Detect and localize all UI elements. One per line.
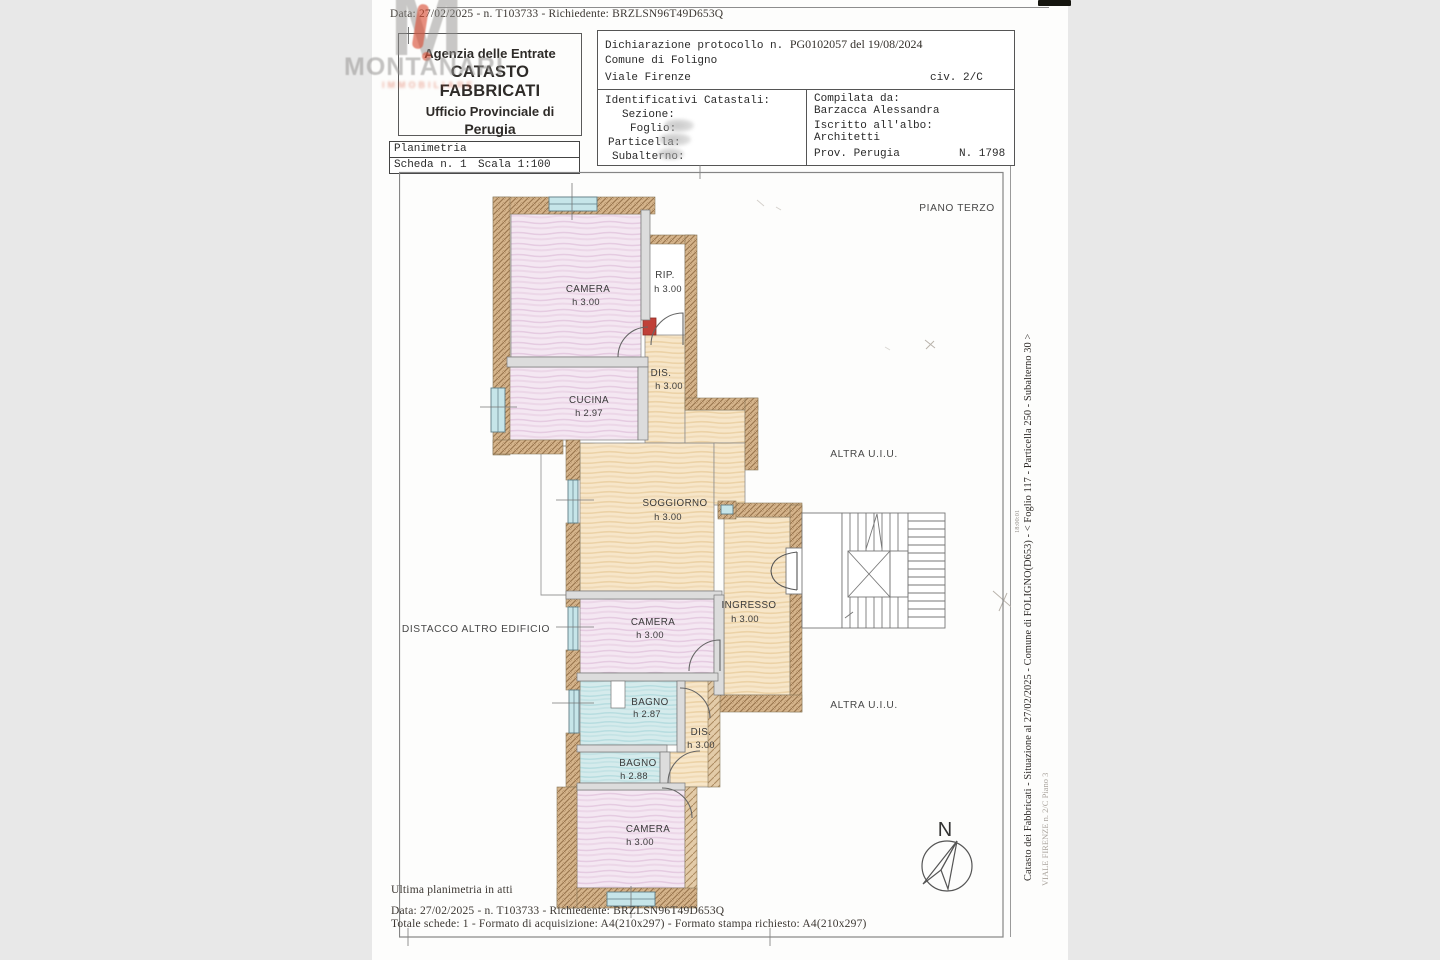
- identificativi-title: Identificativi Catastali:: [605, 94, 770, 108]
- albo-value: Architetti: [814, 132, 933, 144]
- window-pillar: [721, 505, 733, 514]
- top-data-line: Data: 27/02/2025 - n. T103733 - Richiede…: [390, 8, 723, 20]
- altra-uiu-upper: ALTRA U.I.U.: [830, 449, 898, 460]
- label-bagno-2: BAGNO: [619, 758, 656, 769]
- agency-header-box: Agenzia delle Entrate CATASTO FABBRICATI…: [398, 33, 582, 136]
- protocol-line: Dichiarazione protocollo n. PG0102057 de…: [605, 37, 923, 52]
- room-soggiorno: [580, 443, 714, 591]
- height-soggiorno: h 3.00: [654, 512, 682, 522]
- albo-number: N. 1798: [959, 148, 1005, 160]
- compass-north-label: N: [938, 819, 952, 841]
- bottom-data-line: Data: 27/02/2025 - n. T103733 - Richiede…: [391, 905, 724, 917]
- catasto-title: CATASTO FABBRICATI: [399, 63, 581, 101]
- declaration-box: Dichiarazione protocollo n. PG0102057 de…: [597, 30, 1015, 166]
- comune-line: Comune di Foligno: [605, 55, 717, 67]
- room-bagno-1: [580, 681, 677, 745]
- label-dis-lower: DIS.: [691, 727, 712, 738]
- civico-value: civ. 2/C: [930, 72, 983, 84]
- label-soggiorno: SOGGIORNO: [642, 498, 707, 509]
- side-address-text: VIALE FIRENZE n. 2/C Piano 3: [1040, 586, 1050, 886]
- protocol-label: Dichiarazione protocollo n.: [605, 40, 783, 52]
- prov-label: Prov. Perugia: [814, 148, 900, 160]
- albo-block: Iscritto all'albo: Architetti: [814, 120, 933, 144]
- label-cucina: CUCINA: [569, 395, 609, 406]
- label-ingresso: INGRESSO: [722, 600, 777, 611]
- planimetria-label: Planimetria: [390, 142, 579, 158]
- height-ingresso: h 3.00: [731, 614, 759, 624]
- redacted-subalterno-value: [658, 148, 684, 160]
- bottom-totale-line: Totale schede: 1 - Formato di acquisizio…: [391, 918, 867, 930]
- compilata-name: Barzacca Alessandra: [814, 105, 939, 117]
- height-rip: h 3.00: [654, 284, 682, 294]
- compilata-label: Compilata da:: [814, 93, 939, 105]
- label-bagno-1: BAGNO: [631, 697, 668, 708]
- distacco-label: DISTACCO ALTRO EDIFICIO: [402, 624, 550, 635]
- compass: [922, 841, 972, 891]
- declaration-divider: [806, 89, 807, 165]
- altra-uiu-lower: ALTRA U.I.U.: [830, 700, 898, 711]
- floor-plan: N CAMERA h 3.00 RIP. h 3.00 DIS. h 3.00 …: [399, 162, 1011, 950]
- screenshot-root: { "colors": { "wall_hatch": "#cfa878", "…: [0, 0, 1440, 960]
- redacted-foglio-value: [664, 119, 694, 132]
- side-stamp-text: 18:00:01: [1014, 473, 1021, 533]
- via-line: Viale Firenze: [605, 72, 691, 84]
- floor-label: PIANO TERZO: [919, 203, 994, 214]
- height-bagno-2: h 2.88: [620, 771, 648, 781]
- room-soggiorno-e: [714, 443, 745, 505]
- stairwell: [802, 513, 945, 628]
- height-camera-top: h 3.00: [572, 297, 600, 307]
- redacted-particella-value: [659, 133, 691, 146]
- compilata-block: Compilata da: Barzacca Alessandra: [814, 93, 939, 117]
- agency-name: Agenzia delle Entrate: [399, 46, 581, 61]
- height-dis-lower: h 3.00: [687, 740, 715, 750]
- side-cadastral-text: Catasto dei Fabbricati - Situazione al 2…: [1023, 403, 1034, 881]
- label-camera-top: CAMERA: [566, 284, 610, 295]
- protocol-value: PG0102057 del 19/08/2024: [790, 37, 923, 51]
- height-dis-upper: h 3.00: [655, 381, 683, 391]
- label-rip: RIP.: [655, 270, 674, 281]
- height-bagno-1: h 2.87: [633, 709, 661, 719]
- height-camera-mid: h 3.00: [636, 630, 664, 640]
- height-cucina: h 2.97: [575, 408, 603, 418]
- label-dis-upper: DIS.: [651, 368, 672, 379]
- room-soggiorno-ne: [685, 410, 745, 443]
- ultima-planimetria-line: Ultima planimetria in atti: [391, 884, 513, 896]
- height-camera-bottom: h 3.00: [626, 837, 654, 847]
- label-camera-mid: CAMERA: [631, 617, 675, 628]
- albo-label: Iscritto all'albo:: [814, 120, 933, 132]
- scan-smudge: [1038, 0, 1071, 6]
- label-camera-bottom: CAMERA: [626, 824, 670, 835]
- stair-landing: [802, 513, 842, 628]
- province-name: Perugia: [399, 121, 581, 137]
- office-line: Ufficio Provinciale di: [399, 104, 581, 119]
